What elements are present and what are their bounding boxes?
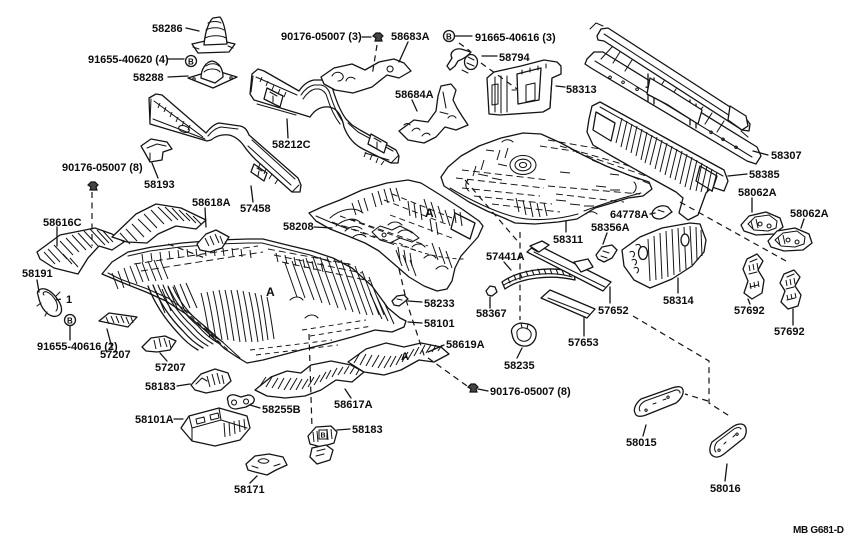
svg-text:58313: 58313 — [566, 84, 597, 96]
svg-text:57692: 57692 — [734, 305, 765, 317]
svg-text:58616C: 58616C — [43, 217, 82, 229]
svg-text:57207: 57207 — [155, 362, 186, 374]
svg-text:58617A: 58617A — [334, 399, 373, 411]
svg-text:57692: 57692 — [774, 326, 805, 338]
svg-text:58794: 58794 — [499, 52, 530, 64]
svg-text:B: B — [446, 33, 452, 42]
svg-text:B: B — [321, 433, 326, 440]
svg-text:90176-05007 (3): 90176-05007 (3) — [281, 31, 362, 43]
svg-text:58255B: 58255B — [262, 404, 301, 416]
svg-text:58183: 58183 — [145, 381, 176, 393]
svg-text:90176-05007 (8): 90176-05007 (8) — [62, 162, 143, 174]
svg-text:58171: 58171 — [234, 484, 265, 496]
svg-text:58307: 58307 — [771, 150, 802, 162]
svg-text:58101: 58101 — [424, 318, 455, 330]
svg-text:90176-05007 (8): 90176-05007 (8) — [490, 386, 571, 398]
svg-text:58183: 58183 — [352, 424, 383, 436]
svg-text:58235: 58235 — [504, 360, 535, 372]
svg-text:58101A: 58101A — [135, 414, 174, 426]
svg-text:58367: 58367 — [476, 308, 507, 320]
svg-text:58208: 58208 — [283, 221, 314, 233]
svg-text:B: B — [188, 58, 194, 67]
svg-text:58193: 58193 — [144, 179, 175, 191]
svg-text:58191: 58191 — [22, 268, 53, 280]
svg-text:57207: 57207 — [100, 349, 131, 361]
svg-text:58288: 58288 — [133, 72, 164, 84]
svg-text:58618A: 58618A — [192, 197, 231, 209]
svg-text:MB G681-D: MB G681-D — [793, 525, 844, 536]
svg-text:B: B — [67, 317, 73, 326]
svg-text:58233: 58233 — [424, 298, 455, 310]
svg-text:58016: 58016 — [710, 483, 741, 495]
svg-text:91655-40620 (4): 91655-40620 (4) — [88, 54, 169, 66]
svg-text:58385: 58385 — [749, 169, 780, 181]
svg-text:58356A: 58356A — [591, 222, 630, 234]
svg-text:58684A: 58684A — [395, 89, 434, 101]
svg-text:1: 1 — [66, 294, 72, 306]
svg-text:58015: 58015 — [626, 437, 657, 449]
svg-text:58311: 58311 — [553, 234, 583, 246]
svg-text:57458: 57458 — [240, 203, 271, 215]
svg-text:A: A — [266, 285, 275, 299]
svg-text:58212C: 58212C — [272, 139, 311, 151]
svg-text:58314: 58314 — [663, 295, 694, 307]
svg-text:58062A: 58062A — [738, 187, 777, 199]
svg-text:58062A: 58062A — [790, 208, 829, 220]
svg-text:58683A: 58683A — [391, 31, 430, 43]
svg-text:57652: 57652 — [598, 305, 629, 317]
svg-text:A: A — [425, 206, 434, 220]
svg-text:58286: 58286 — [152, 23, 183, 35]
svg-text:57441A: 57441A — [486, 251, 525, 263]
svg-text:57653: 57653 — [568, 337, 599, 349]
svg-text:64778A: 64778A — [610, 209, 649, 221]
svg-text:58619A: 58619A — [446, 339, 485, 351]
svg-text:A: A — [401, 351, 409, 363]
svg-text:91665-40616 (3): 91665-40616 (3) — [475, 32, 556, 44]
